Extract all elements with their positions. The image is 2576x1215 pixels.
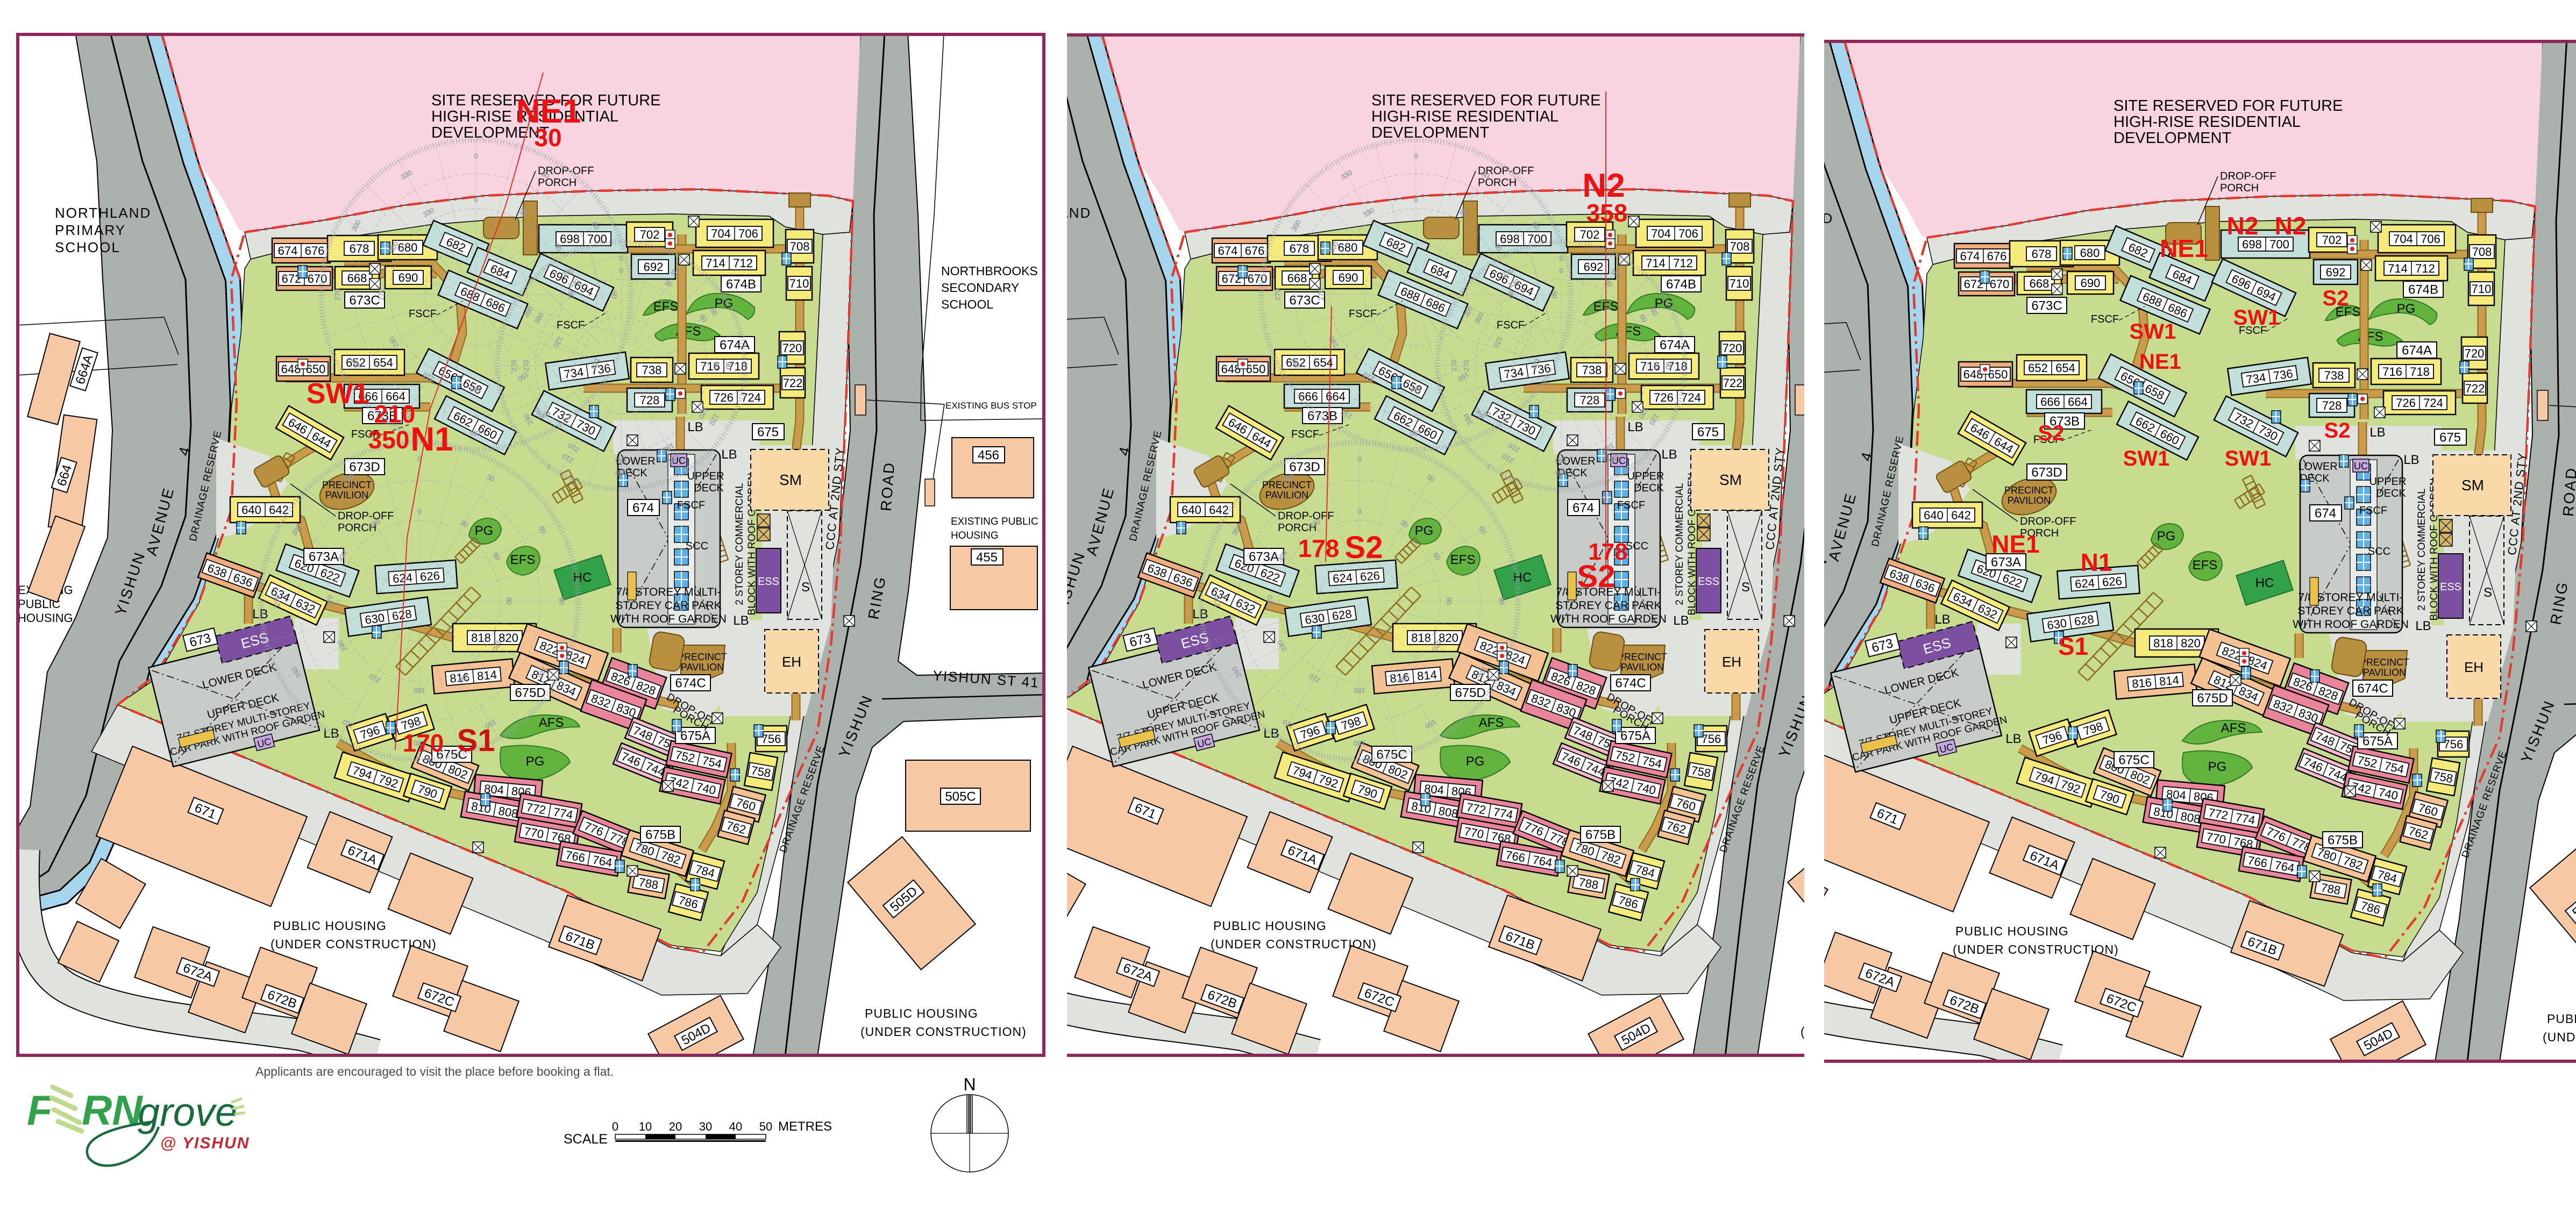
svg-text:N1: N1 [2081,548,2112,576]
svg-text:SW1: SW1 [2130,320,2176,344]
svg-text:0: 0 [612,1120,618,1133]
svg-text:N: N [963,1075,976,1094]
svg-text:358: 358 [1586,199,1628,227]
svg-text:N1: N1 [410,421,453,458]
svg-text:10: 10 [639,1120,652,1133]
svg-text:40: 40 [729,1120,742,1133]
svg-text:S2: S2 [1577,559,1616,594]
svg-text:@ YISHUN: @ YISHUN [160,1134,250,1152]
svg-text:N2: N2 [2275,212,2307,240]
svg-text:50: 50 [759,1120,772,1133]
svg-text:178: 178 [1298,534,1340,562]
svg-text:S2: S2 [2324,419,2351,442]
svg-text:SW1: SW1 [2225,447,2272,470]
svg-text:N2: N2 [2227,212,2259,240]
svg-text:SCALE: SCALE [564,1132,608,1147]
svg-text:SW1: SW1 [2123,447,2170,470]
svg-text:170: 170 [403,729,444,757]
svg-text:S1: S1 [2058,632,2088,660]
svg-text:30: 30 [699,1120,712,1133]
svg-text:NE1: NE1 [2160,234,2208,262]
svg-text:30: 30 [534,124,561,152]
svg-text:SW1: SW1 [306,377,369,410]
svg-text:METRES: METRES [778,1119,832,1134]
svg-text:Applicants are encouraged to v: Applicants are encouraged to visit the p… [255,1064,614,1078]
svg-text:210: 210 [374,400,416,428]
svg-text:S2: S2 [1345,530,1383,565]
svg-text:F: F [27,1087,54,1134]
svg-text:grove: grove [138,1090,237,1134]
svg-text:S2: S2 [2038,421,2065,445]
svg-text:RN: RN [82,1087,143,1134]
svg-text:NE1: NE1 [1991,530,2039,558]
svg-text:20: 20 [669,1120,682,1133]
svg-text:350: 350 [368,426,410,454]
svg-text:S1: S1 [457,723,495,758]
svg-text:S2: S2 [2323,287,2349,310]
svg-text:NE1: NE1 [2139,350,2181,374]
svg-text:SW1: SW1 [2233,306,2280,330]
